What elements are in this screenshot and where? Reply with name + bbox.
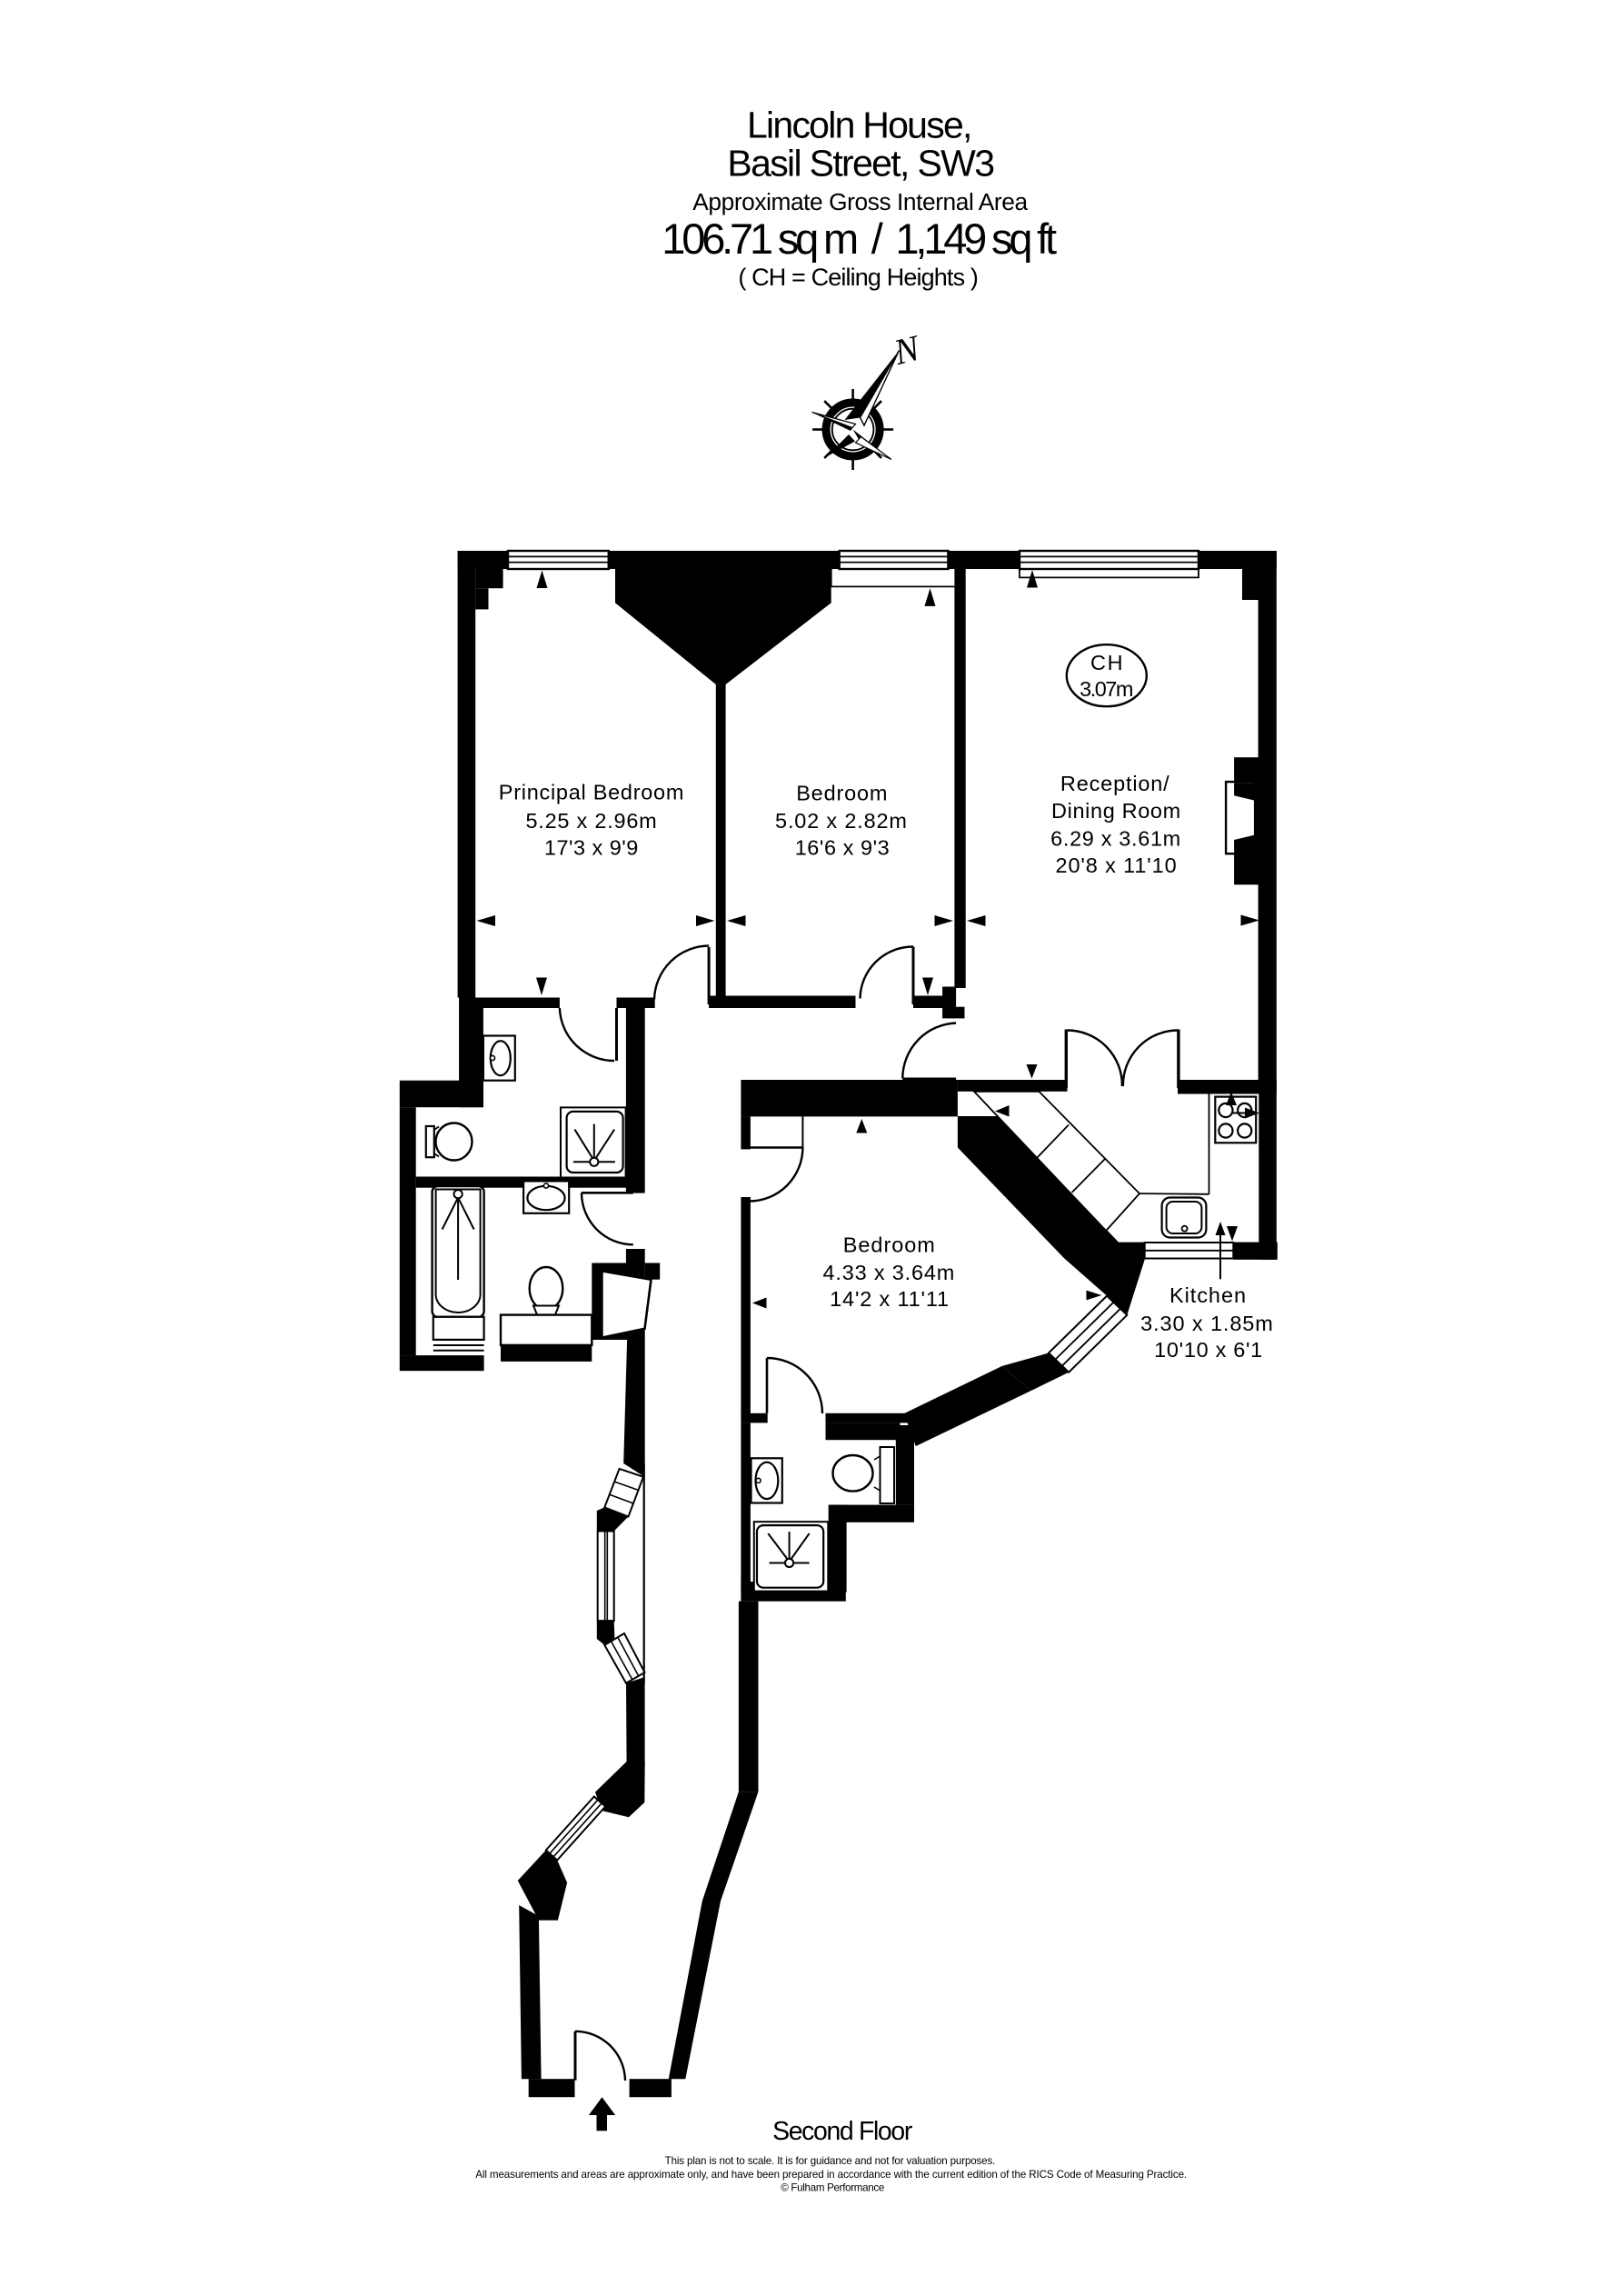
svg-text:3.07m: 3.07m	[1080, 677, 1133, 701]
svg-text:14'2 x 11'11: 14'2 x 11'11	[830, 1287, 949, 1311]
svg-text:Kitchen: Kitchen	[1169, 1283, 1246, 1307]
svg-text:6.29 x 3.61m: 6.29 x 3.61m	[1050, 826, 1180, 850]
svg-text:This plan is not to scale. It: This plan is not to scale. It is for gui…	[665, 2155, 996, 2167]
svg-text:106.71 sq m / 1,149 sq ft: 106.71 sq m / 1,149 sq ft	[662, 215, 1057, 263]
svg-text:Basil Street, SW3: Basil Street, SW3	[727, 143, 995, 185]
svg-text:CH: CH	[1090, 651, 1123, 674]
svg-text:17'3 x 9'9: 17'3 x 9'9	[544, 836, 638, 860]
svg-text:4.33 x 3.64m: 4.33 x 3.64m	[823, 1261, 955, 1284]
svg-text:( CH = Ceiling Heights ): ( CH = Ceiling Heights )	[738, 264, 979, 291]
svg-text:16'6 x 9'3: 16'6 x 9'3	[795, 836, 890, 860]
svg-text:3.30 x 1.85m: 3.30 x 1.85m	[1140, 1312, 1273, 1335]
svg-text:Reception/: Reception/	[1060, 772, 1169, 795]
svg-text:Bedroom: Bedroom	[796, 782, 887, 805]
svg-text:All measurements and areas are: All measurements and areas are approxima…	[475, 2169, 1187, 2181]
svg-text:Approximate Gross Internal Are: Approximate Gross Internal Area	[692, 188, 1028, 215]
svg-text:© Fulham Performance: © Fulham Performance	[781, 2182, 884, 2194]
svg-text:5.02 x 2.82m: 5.02 x 2.82m	[775, 809, 907, 833]
svg-text:Second Floor: Second Floor	[772, 2117, 912, 2146]
svg-text:5.25 x 2.96m: 5.25 x 2.96m	[525, 809, 656, 833]
svg-text:Dining Room: Dining Room	[1051, 799, 1180, 823]
svg-text:Principal Bedroom: Principal Bedroom	[499, 781, 684, 804]
svg-text:20'8 x 11'10: 20'8 x 11'10	[1056, 854, 1177, 877]
svg-text:10'10 x 6'1: 10'10 x 6'1	[1154, 1338, 1262, 1362]
svg-text:Bedroom: Bedroom	[843, 1233, 935, 1257]
svg-text:Lincoln House,: Lincoln House,	[747, 105, 972, 146]
